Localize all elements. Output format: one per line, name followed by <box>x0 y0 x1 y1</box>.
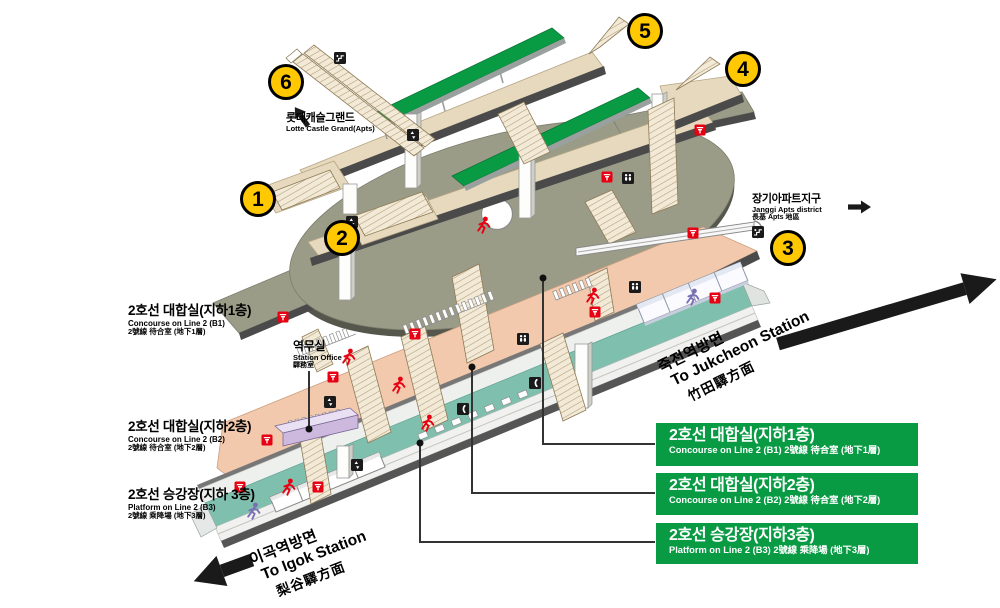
exit-6-number: 6 <box>280 72 292 93</box>
exit-1-number: 1 <box>252 189 264 210</box>
janggi-arrow <box>848 201 871 214</box>
janggi-apts-ko: 장기아파트지구 <box>752 193 822 205</box>
level-label-b2: 2호선 대합실(지하2층) Concourse on Line 2 (B2) 2… <box>128 420 251 453</box>
janggi-apts-hanja: 長基 Apts 地區 <box>752 214 822 222</box>
exit-3-number: 3 <box>782 238 794 259</box>
lotte-castle-label: 롯데캐슬그랜드 Lotte Castle Grand(Apts) <box>286 112 375 133</box>
legend-box-b2: 2호선 대합실(지하2층) Concourse on Line 2 (B2) 2… <box>656 473 918 515</box>
station-office-hanja: 驛務室 <box>293 362 342 370</box>
station-map: 1 2 3 4 5 6 롯데캐슬그랜드 Lotte Castle Grand(A… <box>0 0 1000 608</box>
legend-b1-subtitle: Concourse on Line 2 (B1) 2號線 待合室 (地下1層) <box>669 445 918 456</box>
exit-2-badge: 2 <box>324 220 360 256</box>
exit-5-number: 5 <box>639 21 651 42</box>
level-b2-hanja: 2號線 待合室 (地下2層) <box>128 444 251 453</box>
station-office-ko: 역무실 <box>293 340 342 353</box>
level-label-b1: 2호선 대합실(지하1층) Concourse on Line 2 (B1) 2… <box>128 304 251 337</box>
lotte-castle-en: Lotte Castle Grand(Apts) <box>286 124 375 133</box>
exit-2-number: 2 <box>336 228 348 249</box>
legend-b1-title: 2호선 대합실(지하1층) <box>669 427 918 445</box>
janggi-apts-label: 장기아파트지구 Janggi Apts district 長基 Apts 地區 <box>752 193 822 222</box>
level-b2-ko: 2호선 대합실(지하2층) <box>128 420 251 435</box>
legend-box-b3: 2호선 승강장(지하3층) Platform on Line 2 (B3) 2號… <box>656 523 918 564</box>
level-b3-ko: 2호선 승강장(지하 3층) <box>128 488 255 503</box>
station-office-en: Station Office <box>293 353 342 362</box>
exit-4-number: 4 <box>737 59 749 80</box>
exit-5-badge: 5 <box>627 13 663 49</box>
level-b1-hanja: 2號線 待合室 (地下1層) <box>128 328 251 337</box>
station-office-label: 역무실 Station Office 驛務室 <box>293 340 342 371</box>
legend-b2-title: 2호선 대합실(지하2층) <box>669 477 918 495</box>
exit-6-badge: 6 <box>268 64 304 100</box>
lotte-castle-ko: 롯데캐슬그랜드 <box>286 112 375 124</box>
level-label-b3: 2호선 승강장(지하 3층) Platform on Line 2 (B3) 2… <box>128 488 255 521</box>
level-b3-hanja: 2號線 乘降場 (地下3層) <box>128 512 255 521</box>
legend-box-b1: 2호선 대합실(지하1층) Concourse on Line 2 (B1) 2… <box>656 423 918 466</box>
legend-b3-subtitle: Platform on Line 2 (B3) 2號線 乘降場 (地下3層) <box>669 545 918 556</box>
level-b1-ko: 2호선 대합실(지하1층) <box>128 304 251 319</box>
exit-3-badge: 3 <box>770 230 806 266</box>
janggi-apts-en: Janggi Apts district <box>752 205 822 214</box>
legend-b2-subtitle: Concourse on Line 2 (B2) 2號線 待合室 (地下2層) <box>669 495 918 506</box>
legend-b3-title: 2호선 승강장(지하3층) <box>669 527 918 545</box>
exit-4-badge: 4 <box>725 51 761 87</box>
exit-1-badge: 1 <box>240 181 276 217</box>
